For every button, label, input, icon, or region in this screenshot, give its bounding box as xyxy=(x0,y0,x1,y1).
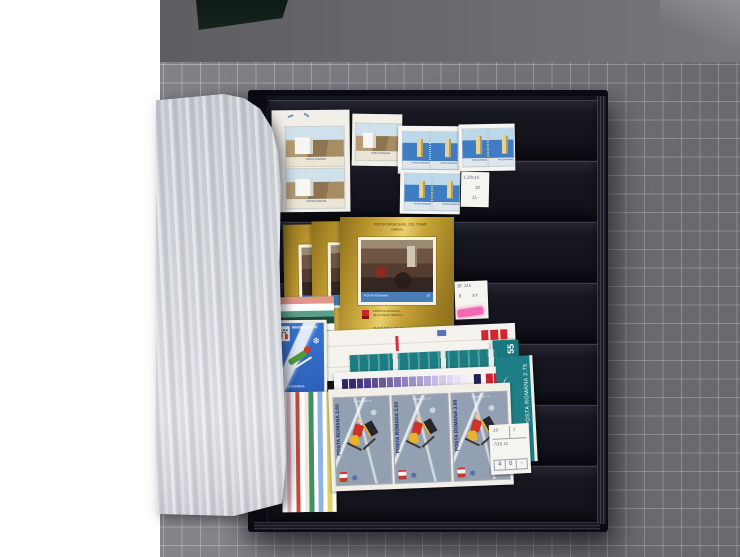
handwritten-note: 7/16 11 xyxy=(494,441,509,447)
book-bottom-edge xyxy=(254,522,600,530)
blue-hotel-stamp: POSTA ROMANA xyxy=(432,173,461,211)
snowflake-icon: ❄ xyxy=(410,471,417,480)
price-label-bottom: 19 1 7/16 11 4 0 - xyxy=(489,423,532,475)
blue-stamp-pair: POSTA ROMANA POSTA ROMANA xyxy=(459,124,516,172)
blue-hotel-stamp: POSTA ROMANA xyxy=(430,131,458,170)
snowflake-icon: ❄ xyxy=(351,473,358,482)
hockey-olympic-stamp: POSTA ROMANA 3.60 INNSBRUCK '76 ❄ xyxy=(391,393,451,484)
stamp-side-text: POSTA ROMANA 2.75 xyxy=(523,363,532,426)
label-grid-line xyxy=(509,426,511,438)
blue-hotel-stamp: POSTA ROMANA xyxy=(402,131,430,170)
hotel-building-art xyxy=(446,181,453,198)
stamp-country-text: POSTA ROMANA xyxy=(364,294,388,297)
handwritten-note: 1.20x15 xyxy=(463,175,479,180)
mountain-hotel-stamp: POSTA ROMANA xyxy=(285,126,345,168)
stamp-country-text: POSTA ROMANA xyxy=(498,159,504,161)
exhibition-emblem-icon xyxy=(362,310,369,319)
stamp-country-text: POSTA ROMANA xyxy=(472,159,478,161)
stamp-country-text: POSTA ROMANA xyxy=(306,158,325,161)
sheet-stamp-area: POSTA ROMANA 10 xyxy=(358,237,436,305)
hotel-building-art xyxy=(295,137,313,154)
glassine-paper xyxy=(156,94,286,516)
color-swatch xyxy=(490,330,498,340)
stamp-country-text: POSTA ROMANA xyxy=(412,162,419,164)
stamp-country-text: POSTA ROMANA xyxy=(440,162,447,164)
stamp-country-text: POSTA ROMANA xyxy=(414,203,421,205)
hotel-building-art xyxy=(295,179,313,196)
blue-registration-mark xyxy=(437,330,446,336)
handwritten-note: 19 xyxy=(493,428,498,433)
hotel-building-art xyxy=(418,181,425,198)
handwritten-note: 11,- xyxy=(472,195,479,200)
mountain-hotel-stamp: POSTA ROMANA xyxy=(355,123,402,162)
exhibition-text: DE FILATELIE TEMATICA xyxy=(373,314,403,317)
hotel-building-art xyxy=(444,140,451,158)
innsbruck-emblem-icon xyxy=(339,472,347,482)
color-swatch xyxy=(500,329,508,339)
innsbruck-emblem-icon xyxy=(457,467,465,477)
exhibition-text: EXPOZITIA MONDIALA xyxy=(373,310,400,313)
innsbruck-emblem-icon xyxy=(398,470,406,480)
mountain-hotel-stamp: POSTA ROMANA xyxy=(285,168,345,210)
label-grid-line xyxy=(492,437,526,440)
hotel-building-art xyxy=(363,133,376,148)
stamp-value-text: 10 xyxy=(426,294,430,297)
hockey-stamp-strip: POSTA ROMANA 3.60 INNSBRUCK '76 ❄ POSTA … xyxy=(328,383,514,492)
red-registration-tick xyxy=(395,336,399,351)
blue-stamp-pair: POSTA ROMANA POSTA ROMANA xyxy=(398,126,460,175)
red-calibration-squares xyxy=(481,329,507,340)
photo-stamp-album: POSTA ROMANA POSTA ROMANA POSTA ROMANA P… xyxy=(0,0,740,557)
hotel-building-art xyxy=(475,136,482,154)
stamp-country-text: POSTA ROMANA xyxy=(442,203,449,205)
price-label-top: 1.20x15 30 11,- xyxy=(461,172,490,208)
handwritten-note: Bl. 115 xyxy=(457,283,471,288)
stamp-country-text: POSTA ROMANA xyxy=(306,199,325,202)
hotel-building-art xyxy=(416,139,423,157)
price-label-middle: Bl. 115 8 XX xyxy=(454,280,488,319)
label-grid-cells: 4 0 - xyxy=(494,458,529,471)
gold-souvenir-sheet-front: PIETER BRUEGHEL CEL TINAR ( IARNA ) POST… xyxy=(340,217,454,339)
hockey-olympic-stamp: POSTA ROMANA 3.60 INNSBRUCK '76 ❄ xyxy=(332,395,392,486)
desk-light-patch xyxy=(660,0,740,48)
pencil-mark xyxy=(287,114,293,118)
handwritten-note: 30 xyxy=(475,185,480,190)
color-swatch xyxy=(481,330,489,340)
blue-hotel-stamp: POSTA ROMANA xyxy=(488,128,515,167)
sheet-title: ( IARNA ) xyxy=(375,228,418,231)
pink-highlighter-mark xyxy=(457,306,484,318)
snowflake-icon: ❄ xyxy=(469,469,476,478)
left-white-margin xyxy=(0,0,160,557)
mountain-stamp-single: POSTA ROMANA xyxy=(352,114,403,167)
bruegel-painting xyxy=(361,240,433,292)
blue-hotel-stamp: POSTA ROMANA xyxy=(462,128,489,167)
handwritten-note: 8 xyxy=(459,293,462,298)
blue-stamp-pair: POSTA ROMANA POSTA ROMANA xyxy=(400,170,461,215)
sheet-title: PIETER BRUEGHEL CEL TINAR xyxy=(374,223,420,226)
handwritten-note: 1 xyxy=(513,427,516,432)
blue-hotel-stamp: POSTA ROMANA xyxy=(404,173,433,211)
stamp-country-text: POSTA ROMANA xyxy=(371,152,384,155)
castle-tower-art xyxy=(407,246,417,267)
handwritten-note: XX xyxy=(472,293,478,298)
glassine-interleaf xyxy=(156,94,286,516)
hotel-building-art xyxy=(501,136,508,154)
page-edge-stack xyxy=(597,96,606,524)
pencil-mark xyxy=(303,113,309,118)
